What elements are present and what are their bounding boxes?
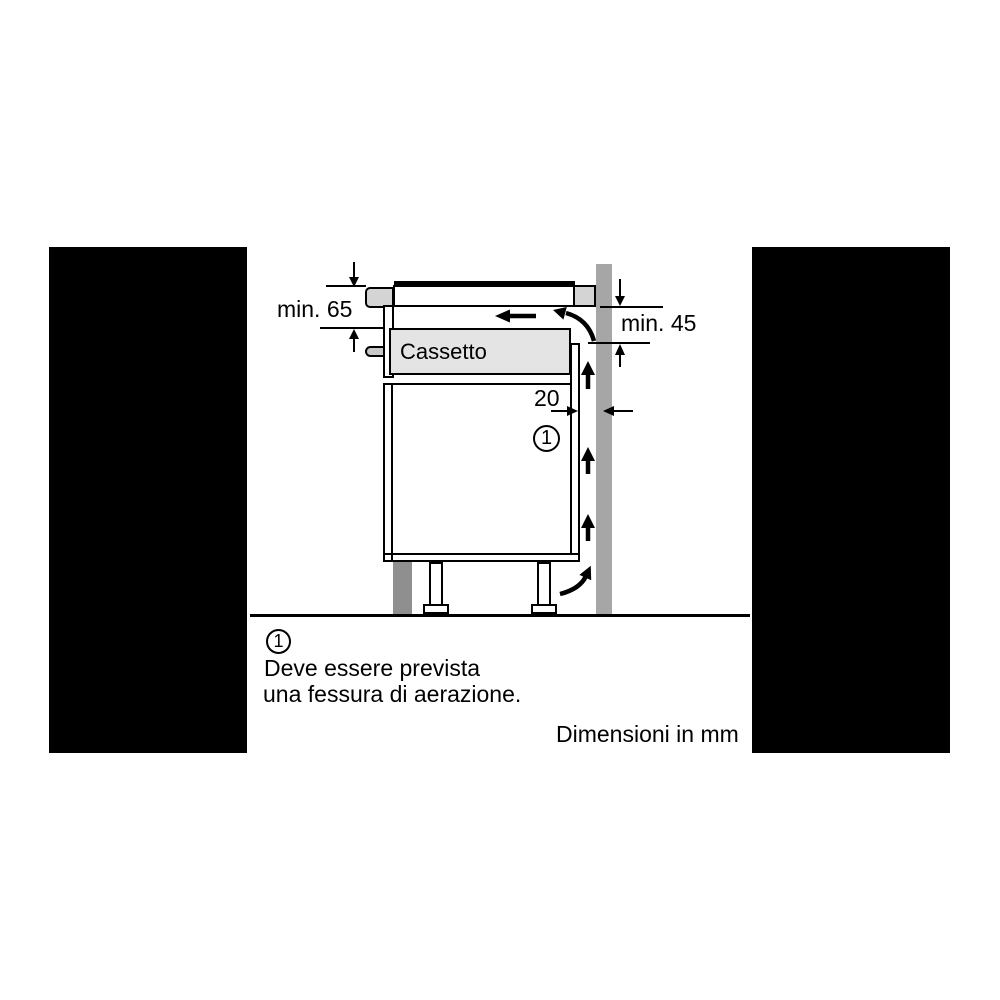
- footnote-line-2: una fessura di aerazione.: [263, 682, 521, 708]
- callout-circle: 1: [533, 425, 560, 452]
- dim-label-wall-clearance: min. 45: [621, 311, 696, 337]
- airflow-up-arrow-icon: [581, 447, 595, 474]
- callout-number: 1: [541, 427, 552, 450]
- dim-up-arrow-icon: [615, 344, 625, 367]
- dim-left-arrow-icon: [603, 406, 633, 416]
- dim-label-worktop: min. 65: [277, 297, 352, 323]
- units-caption: Dimensioni in mm: [556, 722, 739, 748]
- airflow-left-arrow-icon: [495, 310, 536, 323]
- dim-down-arrow-icon: [615, 279, 625, 306]
- footnote-line-1: Deve essere prevista: [264, 656, 480, 682]
- dim-label-rear-gap: 20: [534, 386, 560, 412]
- dim-up-arrow-icon: [349, 329, 359, 352]
- footnote-circle: 1: [266, 629, 291, 654]
- installation-diagram: Cassetto: [0, 0, 1000, 1000]
- airflow-up-arrow-icon: [581, 514, 595, 541]
- arrows-overlay: [0, 0, 1000, 1000]
- footnote-number: 1: [273, 631, 283, 652]
- dim-down-arrow-icon: [349, 262, 359, 287]
- airflow-curved-arrow-icon: [560, 566, 591, 594]
- airflow-up-arrow-icon: [581, 361, 595, 389]
- airflow-curved-arrow-icon: [553, 307, 594, 341]
